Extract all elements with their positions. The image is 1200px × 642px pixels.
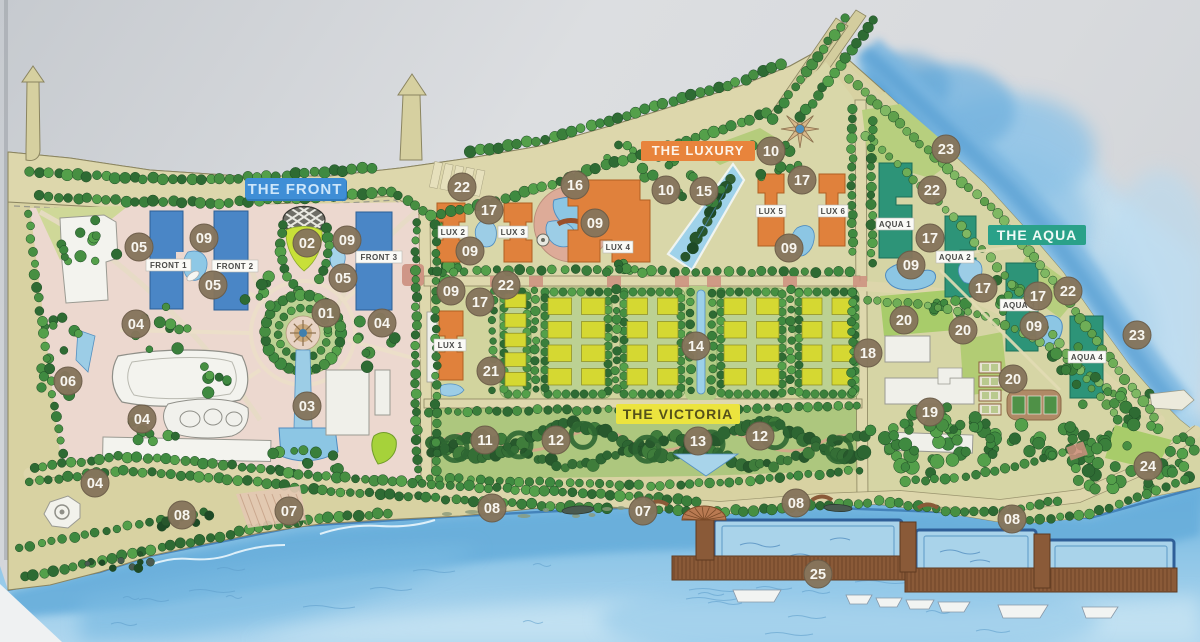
svg-text:FRONT 1: FRONT 1 — [150, 261, 187, 270]
svg-text:22: 22 — [498, 278, 514, 294]
svg-text:09: 09 — [462, 244, 478, 260]
svg-text:05: 05 — [205, 278, 221, 294]
svg-text:17: 17 — [975, 281, 991, 297]
svg-text:09: 09 — [1026, 319, 1042, 335]
svg-text:10: 10 — [763, 144, 779, 160]
svg-text:09: 09 — [903, 258, 919, 274]
svg-text:THE FRONT: THE FRONT — [248, 181, 343, 198]
svg-text:20: 20 — [1005, 372, 1021, 388]
svg-text:03: 03 — [299, 399, 315, 415]
svg-text:17: 17 — [472, 295, 488, 311]
svg-text:04: 04 — [134, 412, 150, 428]
svg-text:09: 09 — [196, 231, 212, 247]
svg-text:22: 22 — [454, 180, 470, 196]
svg-text:23: 23 — [1129, 328, 1145, 344]
svg-text:17: 17 — [1030, 289, 1046, 305]
svg-text:13: 13 — [690, 434, 706, 450]
svg-text:04: 04 — [87, 476, 103, 492]
svg-text:04: 04 — [128, 317, 144, 333]
svg-text:05: 05 — [131, 240, 147, 256]
svg-text:FRONT 2: FRONT 2 — [216, 262, 253, 271]
svg-text:THE LUXURY: THE LUXURY — [652, 143, 745, 158]
svg-text:06: 06 — [60, 374, 76, 390]
svg-text:14: 14 — [688, 339, 704, 355]
svg-text:05: 05 — [335, 271, 351, 287]
svg-text:15: 15 — [696, 184, 712, 200]
svg-text:09: 09 — [587, 216, 603, 232]
svg-text:21: 21 — [483, 364, 499, 380]
svg-text:LUX 2: LUX 2 — [441, 228, 466, 237]
svg-text:AQUA 2: AQUA 2 — [939, 253, 971, 262]
svg-text:22: 22 — [924, 183, 940, 199]
svg-text:20: 20 — [955, 323, 971, 339]
svg-text:10: 10 — [658, 183, 674, 199]
svg-text:25: 25 — [810, 567, 826, 583]
svg-text:11: 11 — [477, 433, 492, 449]
svg-text:09: 09 — [781, 241, 797, 257]
svg-text:LUX 5: LUX 5 — [759, 207, 784, 216]
svg-text:THE VICTORIA: THE VICTORIA — [623, 406, 734, 422]
svg-text:08: 08 — [484, 501, 500, 517]
svg-text:09: 09 — [339, 233, 355, 249]
svg-text:12: 12 — [548, 433, 564, 449]
svg-text:AQUA 1: AQUA 1 — [879, 220, 911, 229]
svg-text:17: 17 — [481, 203, 497, 219]
svg-text:08: 08 — [1004, 512, 1020, 528]
svg-text:09: 09 — [443, 284, 459, 300]
svg-text:16: 16 — [567, 178, 583, 194]
svg-text:04: 04 — [374, 316, 390, 332]
svg-text:01: 01 — [318, 306, 334, 322]
svg-text:22: 22 — [1060, 284, 1076, 300]
svg-text:08: 08 — [788, 496, 804, 512]
svg-text:FRONT 3: FRONT 3 — [360, 253, 397, 262]
svg-text:02: 02 — [299, 236, 315, 252]
svg-text:AQUA 4: AQUA 4 — [1071, 353, 1103, 362]
svg-text:07: 07 — [635, 504, 651, 520]
svg-text:LUX 1: LUX 1 — [438, 341, 463, 350]
svg-text:17: 17 — [794, 173, 810, 189]
svg-text:THE AQUA: THE AQUA — [997, 227, 1078, 243]
svg-text:LUX 3: LUX 3 — [501, 228, 526, 237]
svg-text:20: 20 — [896, 313, 912, 329]
svg-text:12: 12 — [752, 429, 768, 445]
svg-text:19: 19 — [922, 405, 938, 421]
svg-text:23: 23 — [938, 142, 954, 158]
svg-text:24: 24 — [1140, 459, 1156, 475]
svg-text:18: 18 — [860, 346, 876, 362]
svg-text:08: 08 — [174, 508, 190, 524]
svg-text:07: 07 — [281, 504, 297, 520]
svg-text:17: 17 — [922, 231, 938, 247]
svg-text:LUX 6: LUX 6 — [821, 207, 846, 216]
svg-text:LUX 4: LUX 4 — [606, 243, 631, 252]
